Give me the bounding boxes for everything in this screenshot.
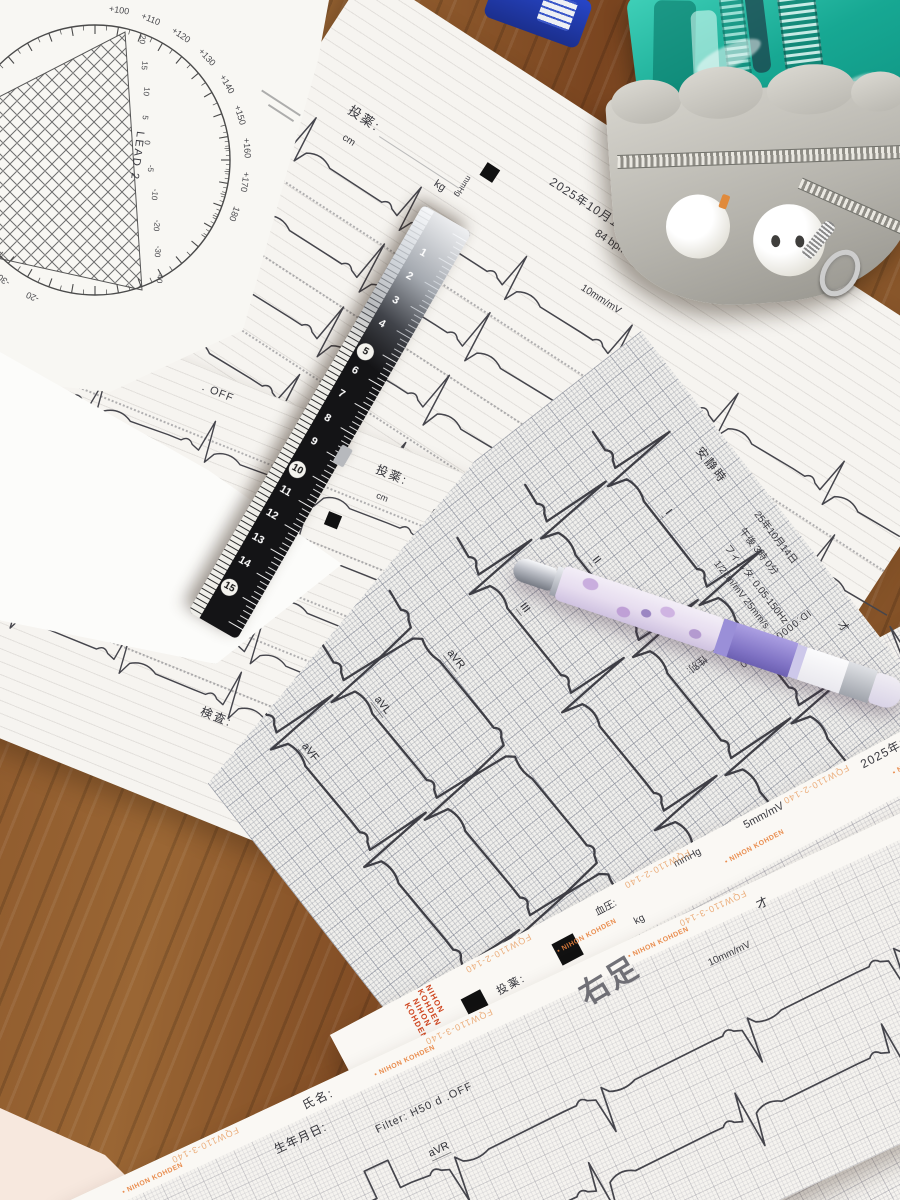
ruler-number: 1: [417, 246, 428, 259]
ruler-number: 4: [376, 317, 387, 330]
ruler-number: 12: [263, 507, 280, 524]
ruler-number: 14: [236, 554, 253, 571]
fine-print-line: [268, 104, 294, 122]
axis-degree-label: +170: [239, 171, 252, 193]
axis-degree-label: +120: [170, 25, 192, 45]
axis-degree-label: +150: [233, 104, 249, 126]
axis-degree-label: -20: [25, 290, 41, 304]
axis-degree-label: +160: [241, 138, 253, 159]
axis-degree-label: -30: [0, 272, 11, 288]
axis-degree-label: +110: [140, 11, 162, 28]
pouch-fold: [610, 77, 683, 126]
pouch-zipper: [617, 145, 900, 169]
lead2-label: LEAD 2: [128, 131, 146, 182]
axis-degree-label: +130: [196, 46, 217, 68]
ruler-number: 8: [322, 411, 333, 424]
ruler-number: 5: [354, 340, 377, 363]
ruler-number: 15: [218, 576, 241, 599]
axis-degree-label: 180: [227, 206, 242, 224]
ruler-number: 13: [250, 530, 267, 547]
axis-degree-label: +100: [108, 3, 130, 16]
desk-photo-ecg-printouts: 投薬: cm kg mmHg 2025年10月14日 1:38 PM 84 bp…: [0, 0, 900, 1200]
axis-inner-scale-label: 10: [141, 86, 151, 96]
axis-inner-scale-label: -10: [149, 188, 159, 201]
charm-eye: [771, 235, 781, 248]
ruler-number: 11: [277, 483, 293, 499]
ruler-number: 9: [308, 435, 319, 448]
axis-inner-scale-label: 5: [141, 114, 150, 120]
axis-inner-scale-label: -30: [153, 245, 163, 258]
charm-beak: [718, 194, 730, 210]
ruler-number: 2: [404, 270, 415, 283]
ruler-number: 3: [390, 293, 401, 306]
blue-pen-label: [536, 0, 578, 32]
charm-eye: [795, 235, 805, 248]
axis-inner-scale-label: 15: [139, 60, 149, 70]
ruler-number: 6: [349, 364, 360, 377]
axis-inner-scale-label: -20: [151, 219, 161, 232]
axis-inner-scale-label: 20: [138, 35, 148, 45]
axis-inner-scale-label: -40: [155, 271, 165, 284]
axis-degree-label: +140: [217, 73, 236, 96]
ruler-number: 7: [336, 388, 347, 401]
axis-inner-scale-label: -5: [145, 165, 155, 173]
ruler-number: 10: [286, 458, 309, 481]
blue-pen-object: [482, 0, 593, 50]
